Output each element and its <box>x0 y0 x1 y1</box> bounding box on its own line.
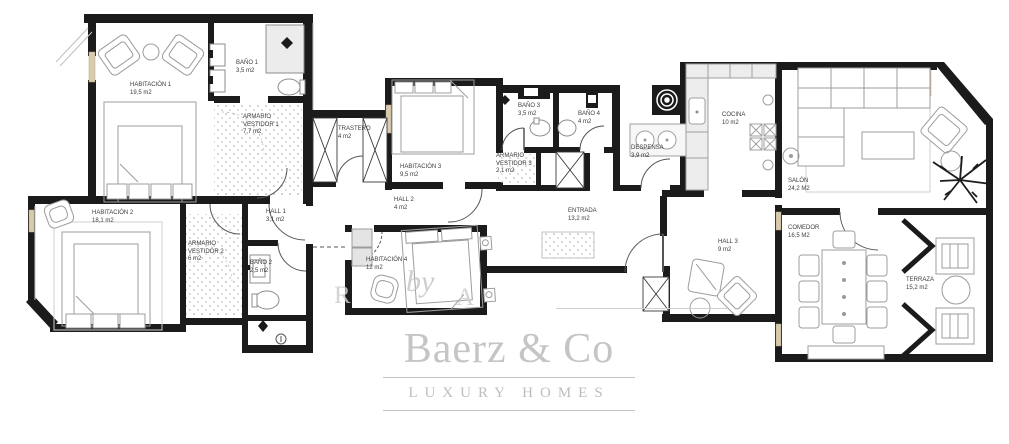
room-area: 3,1 m2 <box>266 217 286 225</box>
room-name: DESPENSA <box>631 145 664 153</box>
room-label-bano-4: BAÑO 4 4 m2 <box>578 111 600 126</box>
watermark-by: by <box>406 265 434 299</box>
room-name: ARMARIO VESTIDOR 1 <box>243 114 285 129</box>
logo-divider-bottom <box>383 410 635 411</box>
room-area: 16,5 M2 <box>788 233 819 241</box>
room-label-hall-3: HALL 3 9 m2 <box>718 239 738 254</box>
room-name: BAÑO 3 <box>518 103 540 111</box>
room-label-habitacion-2: HABITACIÓN 2 18,1 m2 <box>92 210 133 225</box>
furniture-hall-3 <box>687 258 758 318</box>
room-name: HABITACIÓN 2 <box>92 210 133 218</box>
room-area: 19,5 m2 <box>130 90 171 98</box>
room-label-bano-2: BAÑO 2 2,5 m2 <box>250 260 272 275</box>
watermark-letter-right: A <box>456 284 474 312</box>
terrace-table <box>942 276 970 304</box>
furniture-salon <box>783 68 969 192</box>
room-label-terraza: TERRAZA 15,2 m2 <box>906 277 934 292</box>
cooktop-burners <box>750 124 776 150</box>
armario-vestidor-2-area <box>186 214 242 316</box>
room-label-habitacion-1: HABITACIÓN 1 19,5 m2 <box>130 82 171 97</box>
furniture-habitacion-1 <box>96 33 205 202</box>
room-area: 2,1 m2 <box>496 168 536 176</box>
room-label-despensa: DESPENSA 3,9 m2 <box>631 145 664 160</box>
sideboard <box>808 346 884 359</box>
room-name: BAÑO 2 <box>250 260 272 268</box>
room-label-salon: SALÓN 24,2 M2 <box>788 178 810 193</box>
entrada-closet <box>542 232 594 258</box>
room-name: TERRAZA <box>906 277 934 285</box>
room-area: 10 m2 <box>722 120 745 128</box>
room-name: HABITACIÓN 3 <box>400 164 441 172</box>
room-label-bano-1: BAÑO 1 3,5 m2 <box>236 60 258 75</box>
armchair <box>919 105 968 154</box>
room-area: 9 m2 <box>718 247 738 255</box>
room-name: HABITACIÓN 1 <box>130 82 171 90</box>
room-name: HABITACIÓN 4 <box>366 257 407 265</box>
brand-logo: Baerz & Co LUXURY HOMES <box>383 327 635 411</box>
room-label-hall-2: HALL 2 4 m2 <box>394 197 414 212</box>
room-label-armario-vestidor-2: ARMARIO VESTIDOR 2 6 m2 <box>188 241 230 264</box>
logo-subtitle: LUXURY HOMES <box>383 385 635 402</box>
furniture-terraza <box>936 238 974 344</box>
room-label-hall-1: HALL 1 3,1 m2 <box>266 209 286 224</box>
floor-plan-canvas: HABITACIÓN 1 19,5 m2 BAÑO 1 3,5 m2 ARMAR… <box>0 0 1009 444</box>
furniture-cocina <box>686 64 776 190</box>
logo-divider-top <box>383 377 635 378</box>
room-label-armario-vestidor-3: ARMARIO VESTIDOR 3 2,1 m2 <box>496 153 536 176</box>
room-area: 4 m2 <box>578 119 600 127</box>
room-label-cocina: COCINA 10 m2 <box>722 112 745 127</box>
room-area: 3,5 m2 <box>236 68 258 76</box>
watermark-line <box>556 308 728 309</box>
room-area: 18,1 m2 <box>92 218 133 226</box>
furniture-habitacion-3 <box>392 80 474 154</box>
room-area: 9,5 m2 <box>400 172 441 180</box>
room-name: HALL 1 <box>266 209 286 217</box>
room-area: 15,2 m2 <box>906 285 934 293</box>
room-area: 13,2 m2 <box>568 216 597 224</box>
room-name: ENTRADA <box>568 208 597 216</box>
room-name: COMEDOR <box>788 225 819 233</box>
room-area: 12 m2 <box>366 265 407 273</box>
room-name: SALÓN <box>788 178 810 186</box>
room-name: COCINA <box>722 112 745 120</box>
room-area: 3,5 m2 <box>518 111 540 119</box>
room-label-habitacion-3: HABITACIÓN 3 9,5 m2 <box>400 164 441 179</box>
room-label-comedor: COMEDOR 16,5 M2 <box>788 225 819 240</box>
room-name: TRASTERO <box>338 126 371 134</box>
room-area: 7,7 m2 <box>243 129 285 137</box>
room-label-armario-vestidor-1: ARMARIO VESTIDOR 1 7,7 m2 <box>243 114 285 137</box>
room-name: ARMARIO VESTIDOR 2 <box>188 241 230 256</box>
room-name: BAÑO 1 <box>236 60 258 68</box>
utility-symbols <box>258 320 286 344</box>
room-area: 2,5 m2 <box>250 268 272 276</box>
room-area: 24,2 M2 <box>788 186 810 194</box>
room-label-bano-3: BAÑO 3 3,5 m2 <box>518 103 540 118</box>
room-name: BAÑO 4 <box>578 111 600 119</box>
room-label-entrada: ENTRADA 13,2 m2 <box>568 208 597 223</box>
room-name: HALL 3 <box>718 239 738 247</box>
room-area: 6 m2 <box>188 256 230 264</box>
room-label-trastero: TRASTERO 4 m2 <box>338 126 371 141</box>
room-label-habitacion-4: HABITACIÓN 4 12 m2 <box>366 257 407 272</box>
shower-head-icon <box>258 320 268 332</box>
logo-title: Baerz & Co <box>383 327 635 371</box>
room-area: 4 m2 <box>394 205 414 213</box>
room-name: HALL 2 <box>394 197 414 205</box>
watermark-letter-left: R <box>334 282 351 310</box>
room-area: 4 m2 <box>338 134 371 142</box>
room-area: 3,9 m2 <box>631 153 664 161</box>
coffee-table <box>862 132 914 159</box>
room-name: ARMARIO VESTIDOR 3 <box>496 153 536 168</box>
